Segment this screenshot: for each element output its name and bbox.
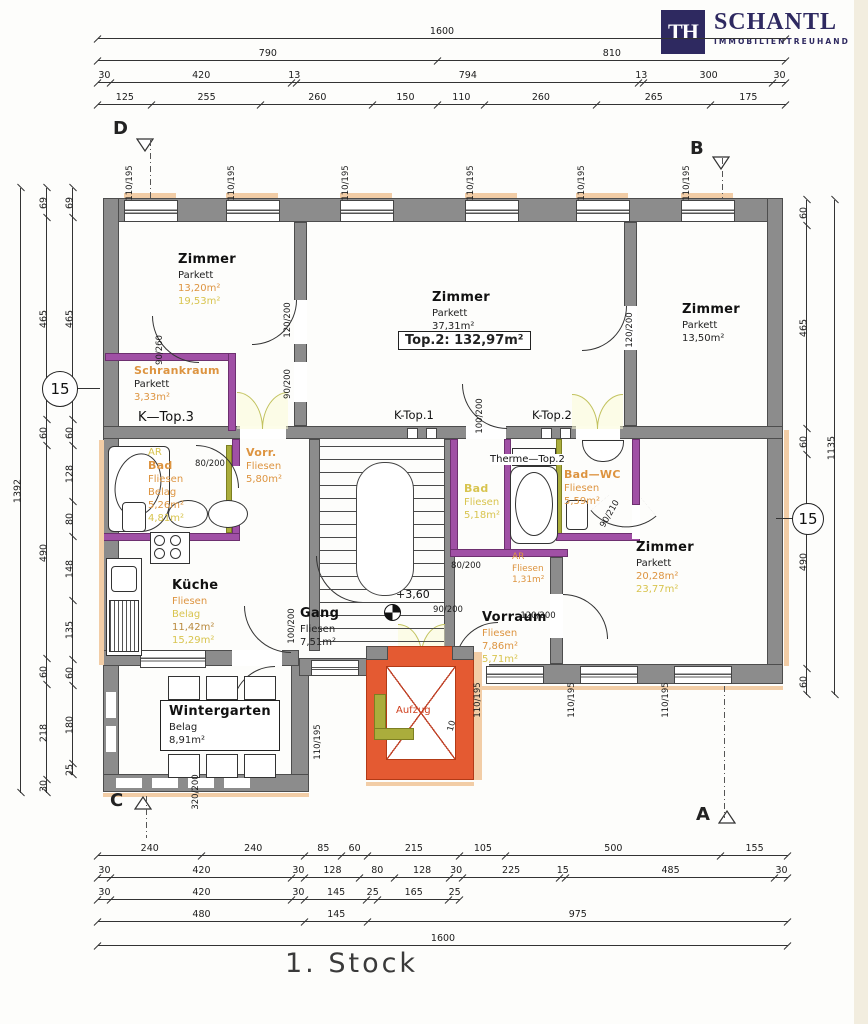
dim-value: 145	[327, 909, 345, 920]
dim-value: 60	[799, 207, 810, 219]
section-line	[724, 686, 725, 818]
dim-line	[98, 877, 788, 878]
elevator-gray-stub	[366, 646, 388, 660]
room-label-ar-center: AR Fliesen 1,31m²	[512, 552, 544, 587]
dim-tick	[69, 681, 77, 689]
elevator-gray-stub	[452, 646, 474, 660]
schrankraum-wall-east-purple	[228, 353, 236, 431]
dim-line	[98, 38, 786, 39]
dim-tick	[363, 852, 371, 860]
dim-tick	[456, 852, 464, 860]
peach-strip-right	[784, 430, 789, 666]
dim-value: 30	[775, 865, 787, 876]
dim-value: 128	[65, 465, 76, 483]
dim-tick	[356, 874, 364, 882]
section-arrow-icon	[718, 810, 736, 824]
room-label-vorr: Vorr. Fliesen 5,80m²	[246, 446, 282, 486]
dim-value: 15	[557, 865, 569, 876]
dim-value: 175	[739, 92, 757, 103]
dim-value: 30	[98, 865, 110, 876]
peach-strip-left	[99, 440, 104, 665]
window	[674, 666, 732, 684]
outer-wall-right	[767, 198, 783, 684]
dim-tick	[94, 57, 102, 65]
dim-tick	[43, 681, 51, 689]
chair-icon	[244, 676, 276, 700]
room-label-wintergarten: Wintergarten Belag 8,91m²	[160, 700, 280, 751]
opening-dim-label: 80/200	[195, 459, 225, 469]
room-label-zimmer-top-center: Zimmer Parkett 37,31m²	[432, 290, 490, 333]
dim-value: 490	[39, 544, 50, 562]
flue-niche	[426, 428, 437, 439]
dim-tick	[43, 416, 51, 424]
unit-area-box: Top.2: 132,97m²	[398, 331, 531, 350]
dim-tick	[803, 691, 811, 699]
room-label-bad-left: AR Bad Fliesen Belag 5,26m² 4,81m²	[148, 446, 184, 525]
dim-value: 810	[603, 48, 621, 59]
dim-tick	[17, 184, 25, 192]
dim-value: 255	[197, 92, 215, 103]
window	[465, 200, 519, 222]
dim-value: 465	[799, 318, 810, 336]
dim-tick	[784, 918, 792, 926]
dim-tick	[301, 852, 309, 860]
opening-dim-label: 110/195	[466, 165, 476, 200]
room-label-bad-center: Bad Fliesen 5,18m²	[464, 482, 500, 522]
dim-tick	[337, 852, 345, 860]
sink-icon	[582, 440, 624, 462]
dim-tick	[69, 498, 77, 506]
dim-tick	[94, 852, 102, 860]
dim-chain-top-overall: 1600	[98, 26, 786, 42]
room-label-zimmer-top-right: Zimmer Parkett 13,50m²	[682, 302, 740, 345]
dim-tick	[706, 101, 714, 109]
opening-dim-label: 110/195	[313, 724, 323, 759]
dim-value: 1600	[431, 933, 455, 944]
dim-tick	[197, 852, 205, 860]
dim-value: 145	[327, 887, 345, 898]
dim-tick	[369, 101, 377, 109]
opening-dim-label: 80/200	[451, 561, 481, 571]
flue-label-k-top1: K-Top.1	[394, 408, 434, 422]
opening-dim-label: 90/200	[433, 605, 463, 615]
dim-tick	[831, 196, 839, 204]
dim-value: 1135	[827, 435, 838, 459]
dim-tick	[803, 451, 811, 459]
peach-strip-bottom	[449, 686, 783, 690]
dim-tick	[717, 852, 725, 860]
floor-plan-canvas: TH SCHANTL IMMOBILIENTREUHAND 1600790810…	[0, 0, 868, 1024]
double-door-icon	[572, 394, 598, 429]
dim-value: 225	[502, 865, 520, 876]
dim-value: 150	[396, 92, 414, 103]
opening-dim-label: 110/195	[341, 165, 351, 200]
bad-wc-wall-south-purple	[556, 533, 640, 541]
door-arc	[582, 306, 627, 351]
bathtub-basin-icon	[515, 472, 553, 536]
dim-value: 180	[65, 716, 76, 734]
window	[340, 200, 394, 222]
room-label-kueche: Küche Fliesen Belag 11,42m² 15,29m²	[172, 578, 218, 647]
room-label-zimmer-top-left: Zimmer Parkett 13,20m² 19,53m²	[178, 252, 236, 308]
dim-value: 420	[192, 70, 210, 81]
dim-value: 125	[116, 92, 134, 103]
section-arrow-icon	[136, 138, 154, 152]
level-marker-icon	[384, 604, 401, 621]
dim-value: 240	[141, 843, 159, 854]
dim-value: 30	[774, 70, 786, 81]
dim-value: 80	[65, 513, 76, 525]
paper-edge	[854, 0, 868, 1024]
section-marker-b: B	[690, 138, 704, 159]
chair-icon	[206, 754, 238, 778]
dim-line	[98, 104, 786, 105]
dim-value: 500	[604, 843, 622, 854]
dim-tick	[94, 918, 102, 926]
window	[124, 200, 178, 222]
dim-chain-bottom-overall: 1600	[98, 933, 788, 949]
dim-tick	[69, 214, 77, 222]
dim-line	[46, 188, 47, 793]
dim-chain-left-outer: 69465604906021830	[34, 188, 50, 793]
flue-niche	[560, 428, 571, 439]
vorraum-wall-north-purple	[450, 549, 568, 557]
opening-dim-label: 90/200	[283, 369, 293, 399]
dim-value: 465	[65, 310, 76, 328]
dim-chain-right-overall: 1135	[822, 200, 838, 695]
dim-tick	[784, 942, 792, 950]
level-marker-label: +3,60	[396, 588, 430, 601]
dim-value: 260	[532, 92, 550, 103]
section-marker-a: A	[696, 804, 710, 825]
wintergarten-glazing	[224, 778, 250, 788]
section-marker-c: C	[110, 790, 123, 811]
dim-value: 85	[317, 843, 329, 854]
opening-dim-label: 110/195	[227, 165, 237, 200]
door-gap	[232, 650, 282, 666]
section-line	[722, 158, 723, 198]
dim-tick	[69, 184, 77, 192]
double-door-icon	[237, 392, 263, 429]
dim-value: 30	[98, 887, 110, 898]
stove-burner-icon	[154, 548, 165, 559]
wintergarten-glazing	[106, 726, 116, 752]
dim-tick	[43, 184, 51, 192]
flue-label-k-top3: K—Top.3	[138, 410, 194, 425]
dim-tick	[94, 942, 102, 950]
section-line	[150, 140, 151, 198]
dim-tick	[43, 214, 51, 222]
dim-tick	[803, 196, 811, 204]
window	[681, 200, 735, 222]
window	[580, 666, 638, 684]
dim-tick	[782, 101, 790, 109]
dim-value: 25	[65, 764, 76, 776]
dim-value: 128	[413, 865, 431, 876]
dim-tick	[782, 57, 790, 65]
dim-value: 215	[405, 843, 423, 854]
dim-tick	[69, 442, 77, 450]
section-line	[146, 796, 147, 838]
dim-value: 148	[65, 560, 76, 578]
opening-dim-label: 120/200	[520, 611, 555, 621]
opening-dim-label: 110/195	[473, 682, 483, 717]
dim-value: 260	[308, 92, 326, 103]
dim-chain-right-inner: 604656049060	[794, 200, 810, 695]
dim-value: 975	[569, 909, 587, 920]
dim-line	[98, 945, 788, 946]
flue-niche	[541, 428, 552, 439]
dim-value: 13	[288, 70, 300, 81]
dim-line	[98, 899, 460, 900]
dim-value: 165	[405, 887, 423, 898]
dim-tick	[94, 101, 102, 109]
dim-value: 465	[39, 310, 50, 328]
wintergarten-wall-right	[291, 664, 309, 792]
dim-value: 420	[192, 887, 210, 898]
dim-value: 25	[367, 887, 379, 898]
dim-value: 30	[292, 887, 304, 898]
opening-dim-label: 120/200	[625, 312, 635, 347]
dim-value: 110	[452, 92, 470, 103]
dim-line	[98, 921, 788, 922]
peach-strip-elevator-bottom	[366, 782, 474, 786]
window	[576, 200, 630, 222]
dim-value: 80	[371, 865, 383, 876]
dim-value: 13	[635, 70, 647, 81]
dim-value: 60	[65, 667, 76, 679]
bad-center-wall-west-purple	[450, 439, 458, 557]
dim-tick	[69, 655, 77, 663]
section-arrow-icon	[712, 156, 730, 170]
room-label-aufzug: Aufzug	[396, 704, 431, 717]
dim-value: 135	[65, 621, 76, 639]
room-label-schrankraum: Schrankraum Parkett 3,33m²	[134, 364, 220, 404]
dim-tick	[69, 416, 77, 424]
dim-chain-top-4: 125255260150110260265175	[98, 92, 786, 108]
spine-wall	[103, 426, 783, 439]
dim-value: 218	[39, 724, 50, 742]
opening-dim-label: 110/195	[661, 682, 671, 717]
axis-bubble-left: 15	[42, 371, 78, 407]
dim-value: 155	[746, 843, 764, 854]
dim-line	[98, 82, 786, 83]
schrankraum-wall-north-purple	[105, 353, 236, 361]
wintergarten-glazing	[116, 778, 142, 788]
dim-tick	[433, 101, 441, 109]
opening-dim-label: 110/195	[682, 165, 692, 200]
flue-label-k-top2: K-Top.2	[532, 408, 572, 422]
dim-tick	[69, 532, 77, 540]
dim-value: 30	[292, 865, 304, 876]
door-arc	[244, 606, 291, 653]
dim-value: 490	[799, 553, 810, 571]
dim-tick	[147, 101, 155, 109]
kitchen-appliance-hatch	[109, 600, 139, 652]
dim-chain-bottom-1: 2402408560215105500155	[98, 843, 788, 859]
dim-value: 30	[450, 865, 462, 876]
dim-value: 69	[65, 197, 76, 209]
dim-value: 60	[799, 676, 810, 688]
room-label-zimmer-right: Zimmer Parkett 20,28m² 23,77m²	[636, 540, 694, 596]
dim-value: 69	[39, 197, 50, 209]
dim-value: 60	[349, 843, 361, 854]
dim-tick	[592, 101, 600, 109]
dim-value: 60	[65, 427, 76, 439]
dim-chain-left-inner: 6946560128801481356018025	[60, 188, 76, 775]
dim-tick	[69, 597, 77, 605]
dim-tick	[301, 918, 309, 926]
stair-eye	[356, 462, 414, 596]
dim-value: 60	[799, 436, 810, 448]
stove-burner-icon	[154, 535, 165, 546]
dim-value: 60	[39, 427, 50, 439]
window	[486, 666, 544, 684]
dim-tick	[803, 222, 811, 230]
dim-chain-top-3: 30420137941330030	[98, 70, 786, 86]
floor-title: 1. Stock	[285, 948, 418, 979]
flue-niche	[407, 428, 418, 439]
dim-line	[98, 60, 786, 61]
dim-tick	[257, 101, 265, 109]
therme-label: Therme—Top.2	[490, 454, 565, 465]
dim-value: 265	[645, 92, 663, 103]
opening-dim-label: 110/195	[567, 682, 577, 717]
opening-dim-label: 110/195	[577, 165, 587, 200]
dim-tick	[43, 442, 51, 450]
dim-tick	[433, 57, 441, 65]
window	[311, 660, 359, 676]
opening-dim-label: 320/200	[191, 774, 201, 809]
opening-dim-label: 100/200	[287, 608, 297, 643]
dim-value: 794	[459, 70, 477, 81]
door-gap	[294, 362, 307, 402]
dim-value: 240	[244, 843, 262, 854]
section-marker-d: D	[113, 118, 128, 139]
opening-dim-label: 120/200	[283, 302, 293, 337]
dim-value: 420	[192, 865, 210, 876]
opening-dim-label: 100/200	[475, 398, 485, 433]
toilet-icon	[122, 502, 146, 532]
wintergarten-glazing	[152, 778, 178, 788]
dim-value: 1600	[430, 26, 454, 37]
section-arrow-icon	[134, 796, 152, 810]
dim-tick	[43, 655, 51, 663]
dim-value: 485	[661, 865, 679, 876]
dim-chain-bottom-4: 480145975	[98, 909, 788, 925]
dim-tick	[501, 852, 509, 860]
dim-chain-top-2: 790810	[98, 48, 786, 64]
dim-tick	[831, 691, 839, 699]
stove-burner-icon	[170, 548, 181, 559]
dim-value: 480	[192, 909, 210, 920]
dim-tick	[390, 874, 398, 882]
dim-tick	[803, 664, 811, 672]
double-door-icon	[597, 394, 623, 429]
dim-value: 30	[39, 780, 50, 792]
dim-tick	[94, 35, 102, 43]
axis-leader	[76, 388, 100, 389]
dim-chain-bottom-3: 30420301452516525	[98, 887, 460, 903]
dim-value: 128	[323, 865, 341, 876]
dim-value: 1392	[13, 478, 24, 502]
dim-value: 25	[449, 887, 461, 898]
kitchen-sink-icon	[111, 566, 137, 592]
dim-value: 300	[700, 70, 718, 81]
dim-tick	[481, 101, 489, 109]
sink-icon	[208, 500, 248, 528]
dim-value: 790	[259, 48, 277, 59]
dim-value: 30	[98, 70, 110, 81]
dim-tick	[363, 918, 371, 926]
axis-bubble-right: 15	[792, 503, 824, 535]
opening-dim-label: 90/260	[155, 335, 165, 365]
dim-tick	[17, 789, 25, 797]
dim-tick	[784, 852, 792, 860]
stove-burner-icon	[170, 535, 181, 546]
dim-value: 105	[474, 843, 492, 854]
chair-icon	[168, 676, 200, 700]
room-label-gang: Gang Fliesen 7,51m²	[300, 606, 339, 649]
door-arc	[563, 594, 608, 639]
window-kitchen-wintergarten	[140, 650, 206, 668]
dim-chain-left-overall: 1392	[8, 188, 24, 793]
chair-icon	[244, 754, 276, 778]
chair-icon	[206, 676, 238, 700]
window	[226, 200, 280, 222]
dim-chain-bottom-2: 304203012880128302251548530	[98, 865, 788, 881]
dim-tick	[803, 425, 811, 433]
opening-dim-label: 110/195	[125, 165, 135, 200]
elevator-green-wall	[374, 728, 414, 740]
wintergarten-glazing	[106, 692, 116, 718]
dim-value: 60	[39, 666, 50, 678]
